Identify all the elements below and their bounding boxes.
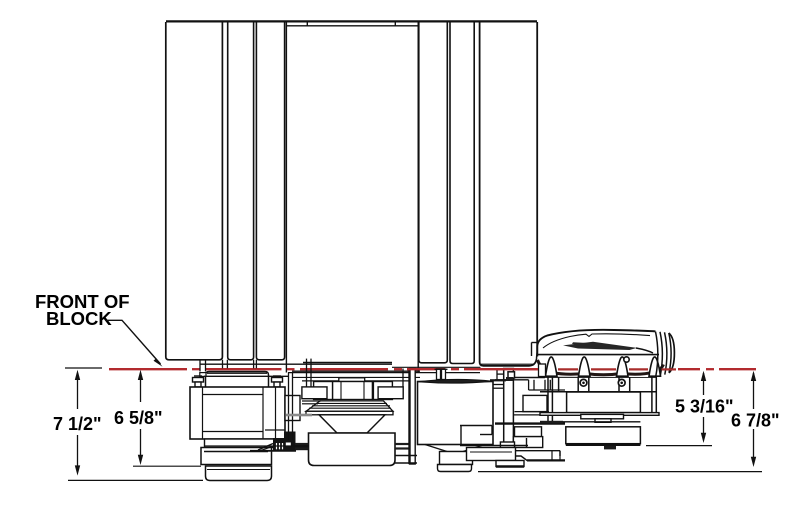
svg-text:6 7/8": 6 7/8" [731,411,780,431]
svg-text:7 1/2": 7 1/2" [53,414,102,434]
svg-text:5 3/16": 5 3/16" [675,397,734,417]
svg-text:6 5/8": 6 5/8" [114,408,163,428]
svg-text:BLOCK: BLOCK [46,308,112,329]
